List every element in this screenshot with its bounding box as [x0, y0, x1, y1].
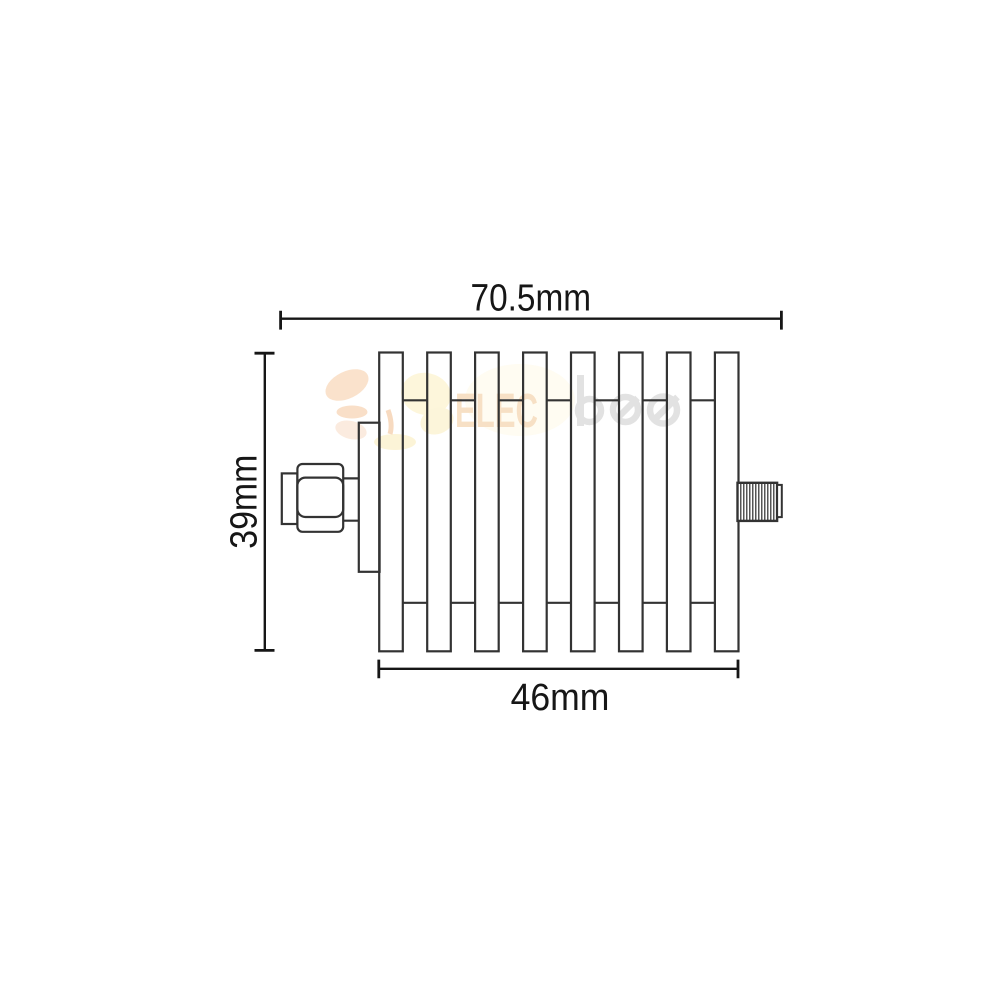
svg-text:70.5mm: 70.5mm [471, 278, 592, 320]
svg-text:39mm: 39mm [224, 455, 266, 549]
svg-text:46mm: 46mm [511, 677, 610, 719]
svg-text:ELEC: ELEC [455, 385, 538, 438]
